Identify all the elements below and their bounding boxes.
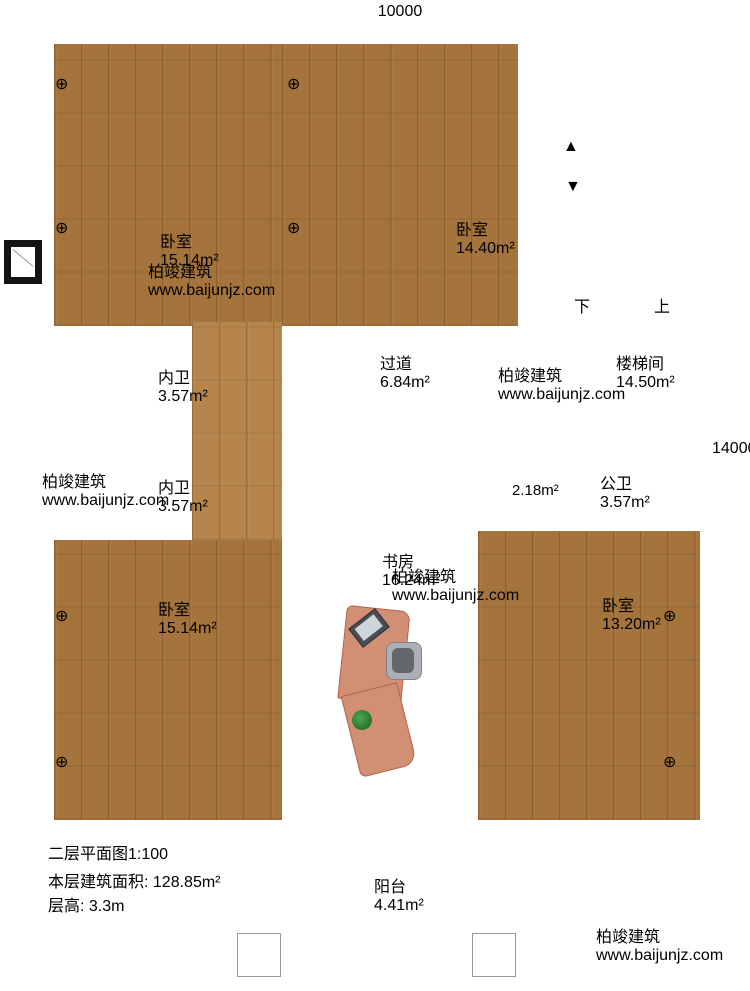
wardrobe: [556, 556, 697, 586]
window: [700, 645, 715, 760]
watermark-url: www.baijunjz.com: [42, 492, 169, 510]
window: [700, 340, 715, 410]
wall: [193, 310, 282, 326]
room-label-stairwell: 楼梯间14.50m²: [616, 350, 675, 392]
sink: [566, 444, 600, 467]
lamp-icon: ⊕: [663, 608, 676, 625]
room-label-balcony: 阳台4.41m²: [374, 873, 424, 915]
pillow: [60, 648, 86, 692]
brand-logo-building-icon: [551, 931, 563, 961]
stair-arrow-up-icon: ▲: [563, 138, 579, 156]
pillow: [292, 114, 318, 158]
dimension-right-value: 14000: [712, 440, 750, 458]
wall: [54, 310, 143, 326]
wardrobe: [286, 276, 428, 310]
stair-direction-down: 下: [574, 293, 590, 317]
title-block: 二层平面图1:100 本层建筑面积: 128.85m² 层高: 3.3m: [48, 840, 308, 916]
pillow: [665, 648, 691, 692]
dimension-top-value: 10000: [378, 3, 423, 21]
floorplan-page: ▲ ▼ 下 上 ⊕ ⊕ ⊕ ⊕ ⊕ ⊕ ⊕ ⊕: [0, 0, 750, 991]
stair-arrow-down-icon: ▼: [565, 178, 581, 196]
nightstand: ⊕: [55, 74, 87, 106]
lamp-icon: ⊕: [287, 76, 300, 93]
door-leaf: [496, 258, 504, 310]
floor-height-label: 层高:: [48, 898, 84, 915]
nightstand: ⊕: [287, 218, 319, 250]
dimension-line-right: [737, 35, 738, 833]
bed: [54, 640, 184, 752]
lamp-icon: ⊕: [663, 754, 676, 771]
window: [40, 337, 55, 398]
watermark: 柏竣建筑 www.baijunjz.com: [42, 468, 169, 510]
stair-direction-up: 上: [654, 293, 670, 317]
lamp-icon: ⊕: [55, 220, 68, 237]
brand-name: 柏竣建筑: [596, 923, 723, 947]
wall: [54, 426, 282, 440]
nightstand: ⊕: [663, 606, 697, 638]
wall: [282, 310, 447, 326]
pillow: [665, 698, 691, 742]
door-leaf: [223, 440, 277, 448]
lamp-icon: ⊕: [55, 76, 68, 93]
window: [565, 30, 665, 45]
wall: [458, 423, 700, 437]
wall: [545, 540, 700, 556]
lamp-icon: ⊕: [55, 754, 68, 771]
pillow: [292, 164, 318, 208]
wardrobe: [54, 556, 196, 588]
door-swing-arc: [552, 487, 602, 537]
nightstand: ⊕: [55, 606, 87, 638]
watermark-url: www.baijunjz.com: [148, 282, 275, 300]
brand-logo-building-icon: [564, 921, 578, 961]
room-label-ensuite-lower: 内卫3.57m²: [158, 474, 208, 516]
room-label-public-bath: 公卫3.57m²: [600, 470, 650, 512]
sink: [148, 448, 180, 470]
bed: [54, 106, 184, 218]
wall: [478, 531, 490, 545]
room-label-vestibule: 2.18m²: [512, 482, 559, 499]
room-label-bedroom-top-mid: 卧室14.40m²: [456, 216, 515, 258]
door-swing-arc: [223, 347, 277, 401]
dimension-extension: [704, 6, 705, 30]
watermark-url: www.baijunjz.com: [498, 386, 625, 404]
dimension-line-top: [143, 23, 705, 24]
window: [700, 110, 715, 260]
wall: [545, 437, 558, 487]
door-leaf: [145, 324, 192, 331]
watermark-name: 柏竣建筑: [42, 468, 169, 492]
washing-machine: [610, 438, 646, 471]
door-swing-arc: [223, 447, 277, 501]
toilet: [106, 394, 132, 428]
watermark-name: 柏竣建筑: [498, 362, 625, 386]
room-label-bedroom-top-left: 卧室15.14m²: [160, 228, 219, 270]
room-label-ensuite-upper: 内卫3.57m²: [158, 364, 208, 406]
floor-drain: [652, 518, 664, 530]
floor-area-value: 128.85m²: [153, 874, 221, 891]
watermark: 柏竣建筑 www.baijunjz.com: [498, 362, 625, 404]
dimension-extension: [718, 35, 740, 36]
wall: [54, 540, 143, 556]
floor-area-label: 本层建筑面积:: [48, 874, 148, 891]
room-label-bedroom-bottom-right: 卧室13.20m²: [602, 592, 661, 634]
plan-title: 二层平面图: [48, 846, 128, 863]
plan-scale: 1:100: [128, 846, 168, 863]
toilet: [650, 438, 682, 476]
brand-logo: 柏竣建筑 www.baijunjz.com: [538, 915, 738, 981]
nightstand: ⊕: [663, 752, 697, 784]
window: [325, 30, 478, 45]
door-leaf: [145, 546, 192, 553]
nightstand: ⊕: [287, 74, 319, 106]
lamp-icon: ⊕: [55, 608, 68, 625]
wall: [270, 498, 282, 835]
door-swing-arc: [446, 258, 498, 310]
stair-handrail: [606, 62, 618, 302]
room-label-hallway: 过道6.84m²: [380, 350, 430, 392]
bed: [567, 640, 697, 752]
window: [87, 30, 233, 45]
pillow: [60, 698, 86, 742]
balcony-column-left: [238, 934, 280, 976]
nightstand: ⊕: [55, 218, 87, 250]
brand-url: www.baijunjz.com: [596, 947, 723, 965]
floor-height-value: 3.3m: [89, 898, 125, 915]
flue-box: [4, 240, 42, 284]
room-label-bedroom-bottom-left: 卧室15.14m²: [158, 596, 217, 638]
wall: [506, 310, 518, 326]
wall: [518, 44, 532, 326]
plant-icon: [352, 710, 372, 730]
pillow: [60, 164, 86, 208]
pillow: [60, 114, 86, 158]
window: [530, 820, 670, 835]
bed: [286, 106, 416, 218]
lamp-icon: ⊕: [287, 220, 300, 237]
window: [58, 820, 128, 835]
nightstand: ⊕: [55, 752, 87, 784]
balcony-sliding-door: [305, 820, 445, 835]
dimension-extension: [143, 6, 144, 30]
dimension-extension: [718, 833, 740, 834]
wall: [193, 540, 282, 556]
desk-chair: [386, 642, 422, 680]
room-label-study: 书房16.24m²: [382, 548, 441, 590]
door-leaf: [223, 396, 277, 404]
balcony-column-right: [473, 934, 515, 976]
